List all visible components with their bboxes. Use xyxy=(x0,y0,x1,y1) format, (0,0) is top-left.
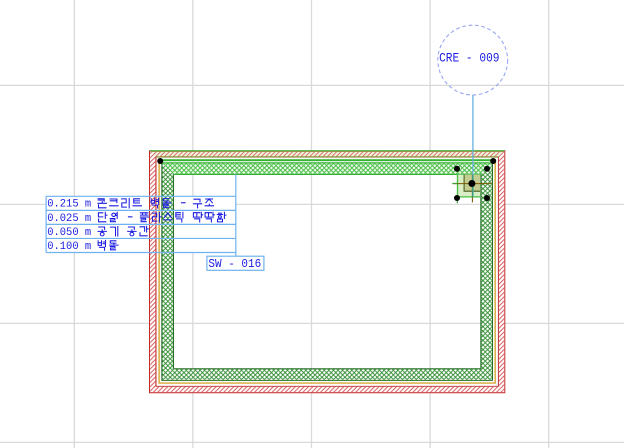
svg-text:0.100 m: 0.100 m xyxy=(47,241,91,253)
svg-text:SW - 016: SW - 016 xyxy=(208,258,261,271)
svg-text:0.215 m: 0.215 m xyxy=(47,199,91,211)
svg-text:0.050 m: 0.050 m xyxy=(47,227,91,239)
svg-text:CRE - 009: CRE - 009 xyxy=(439,52,499,66)
svg-text:0.025 m: 0.025 m xyxy=(47,213,91,225)
